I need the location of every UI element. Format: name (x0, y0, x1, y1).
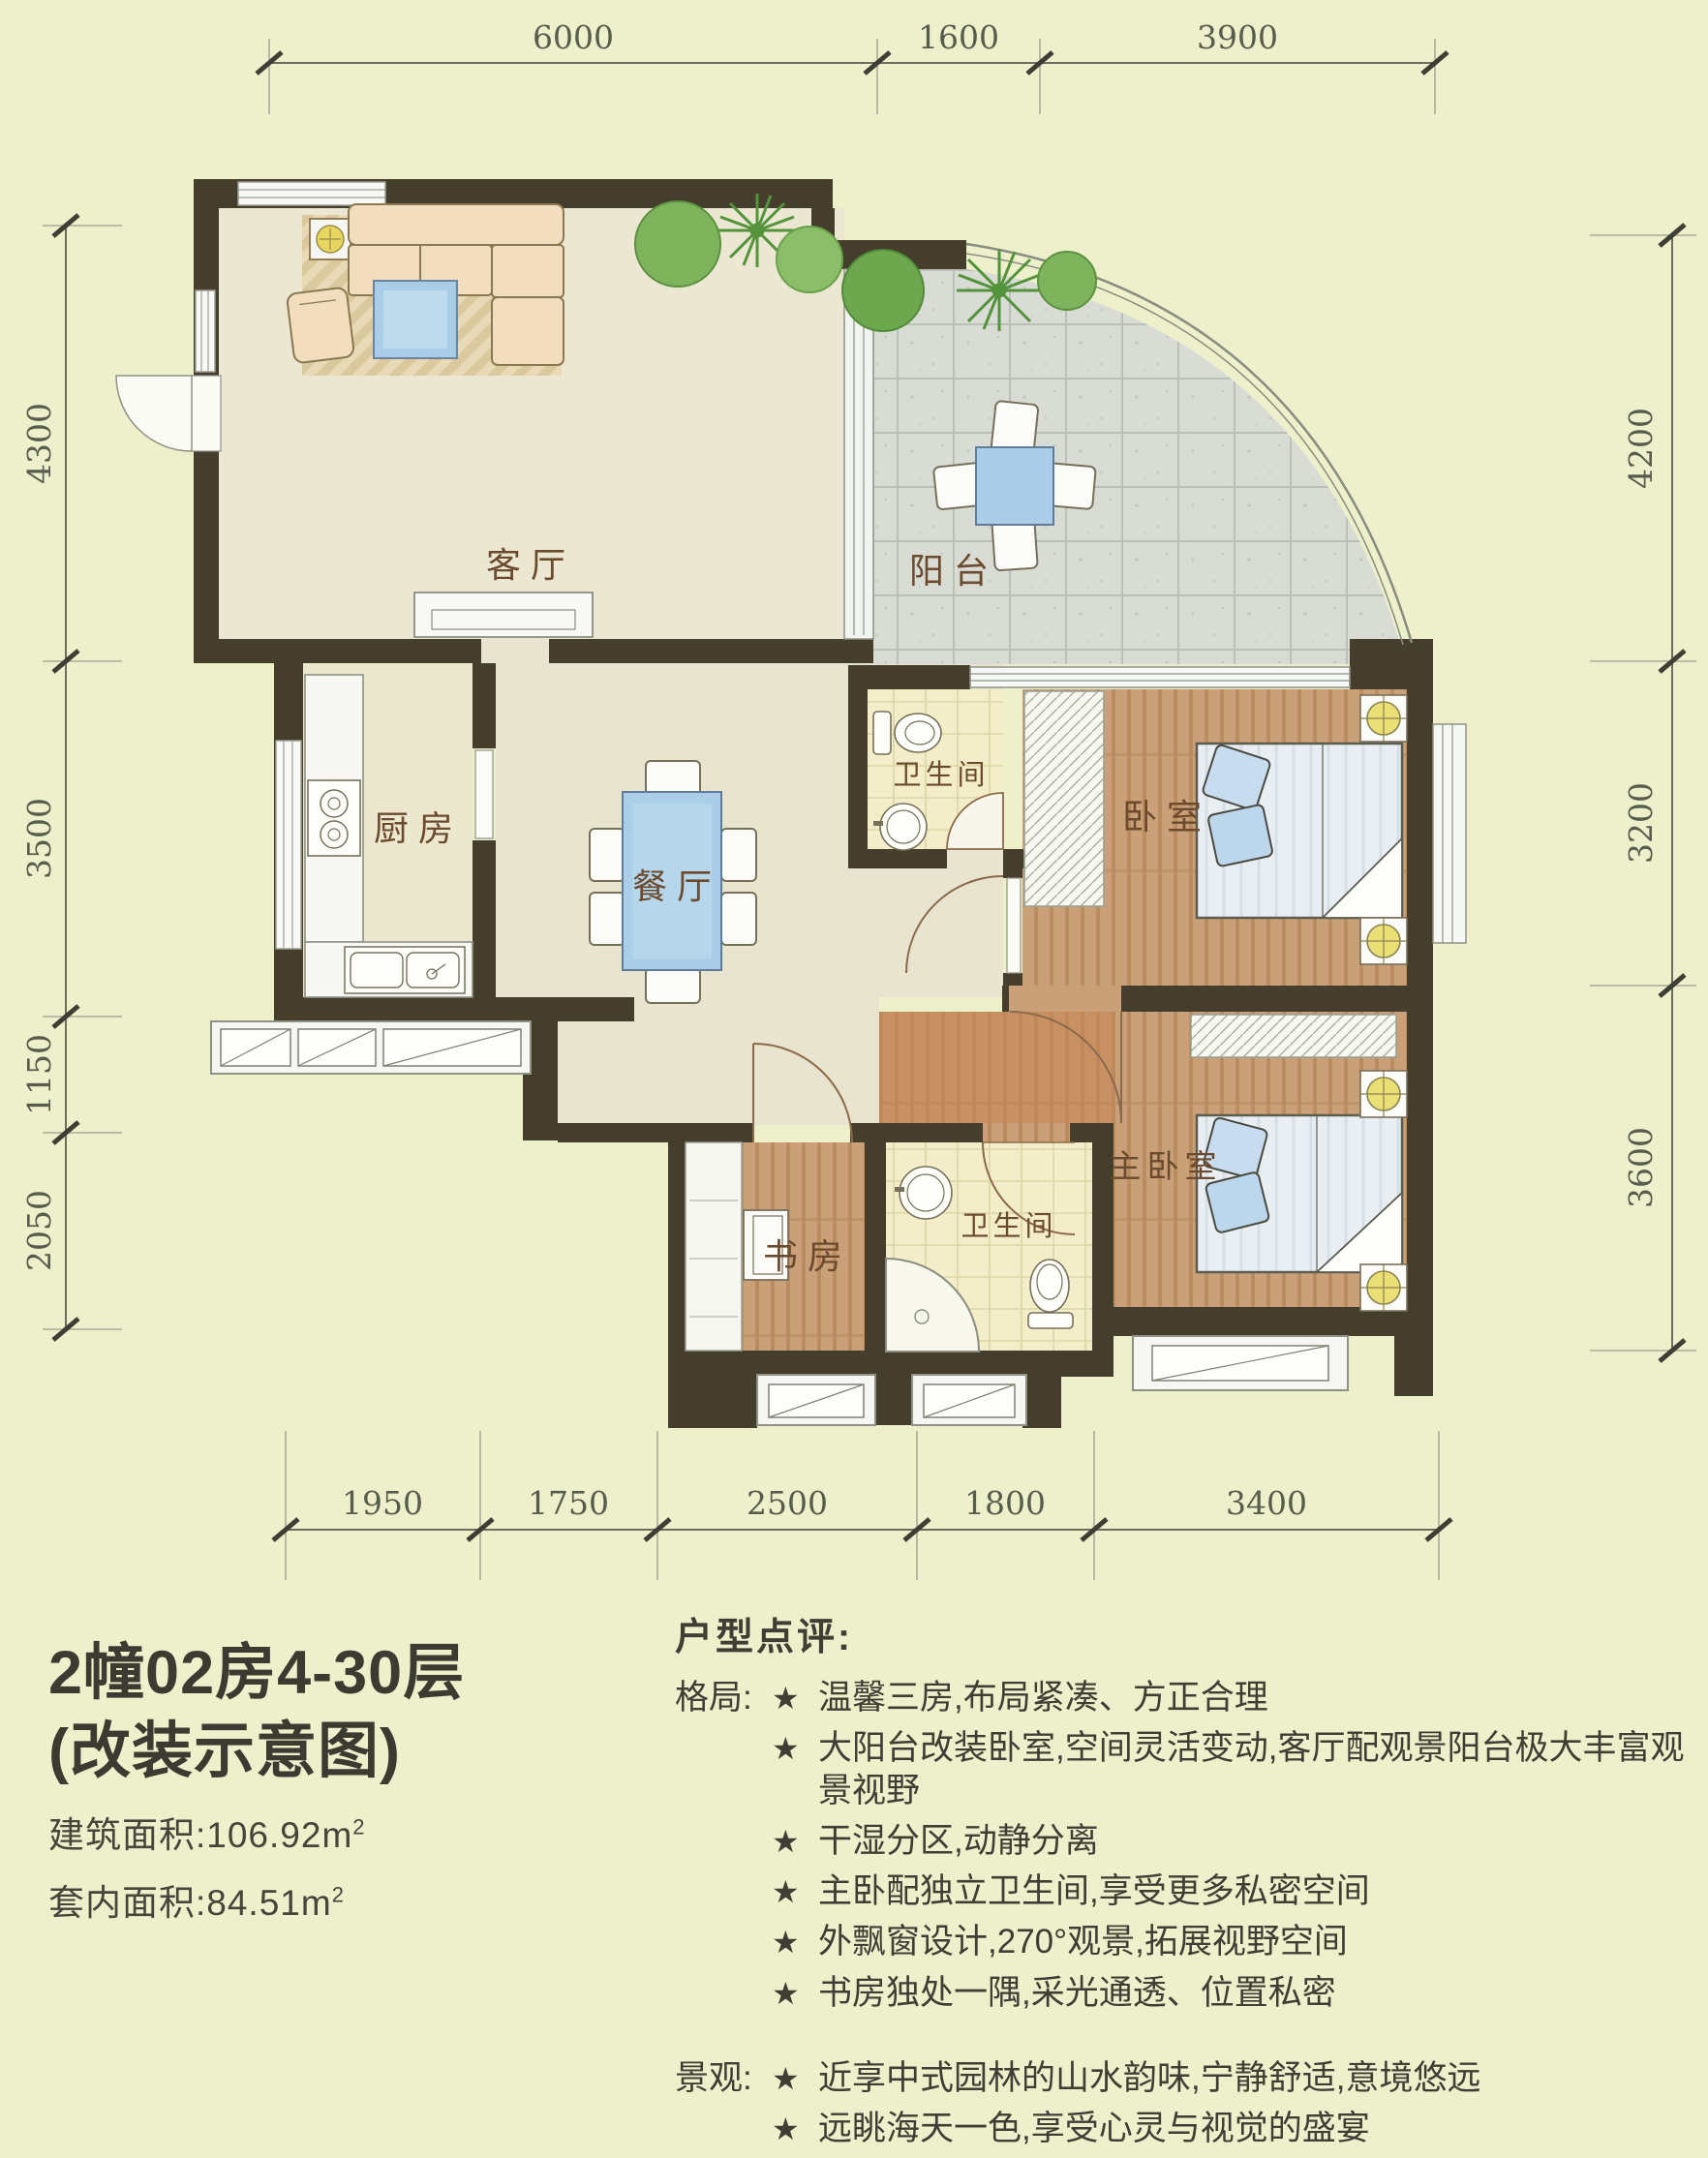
master-bay-window (1133, 1336, 1348, 1390)
dim-label: 1800 (964, 1484, 1046, 1522)
built-area-value: 106.92m (206, 1815, 352, 1855)
nightstand (1360, 918, 1407, 964)
stove-icon (308, 780, 360, 856)
dim-label: 2050 (20, 1190, 58, 1271)
kitchen-bay-window (211, 1021, 531, 1074)
dim-label: 3500 (20, 798, 58, 879)
floor-plan-drawing: 客厅 阳台 厨房 餐厅 卫生间 卧室 书房 卫生间 主卧室 6000 1600 … (0, 0, 1708, 1607)
kitchen-sink-icon (345, 947, 465, 993)
star-icon: ★ (772, 1727, 818, 1812)
inner-area-sup: 2 (332, 1883, 345, 1907)
floor-plan-page: 客厅 阳台 厨房 餐厅 卫生间 卧室 书房 卫生间 主卧室 6000 1600 … (0, 0, 1708, 2103)
dim-label: 3900 (1197, 18, 1278, 56)
wardrobe (1024, 691, 1104, 906)
star-icon: ★ (772, 1677, 818, 1719)
star-icon: ★ (772, 1972, 818, 2015)
balcony-table (976, 447, 1053, 525)
bed (1197, 1115, 1402, 1272)
wardrobe (1191, 1015, 1396, 1057)
dim-label: 3600 (1622, 1127, 1660, 1208)
built-area-sup: 2 (352, 1815, 365, 1839)
unit-title-line1: 2幢02房4-30层 (48, 1634, 465, 1713)
inner-area-row: 套内面积:84.51m2 (48, 1873, 465, 1926)
dining-chair (721, 893, 756, 945)
nightstand (1360, 695, 1407, 742)
master-bedroom-label: 主卧室 (1110, 1147, 1223, 1185)
star-icon: ★ (772, 2108, 818, 2150)
dim-label: 1150 (20, 1034, 58, 1115)
dim-label: 3200 (1622, 782, 1660, 864)
master-entry-floor (879, 1012, 1113, 1123)
dim-right: 4200 3200 3600 (1590, 225, 1696, 1361)
star-icon: ★ (772, 2057, 818, 2100)
review-group-label: 景观: (675, 2057, 772, 2100)
review-item: ★ 外飘窗设计,270°观景,拓展视野空间 (675, 1921, 1687, 1963)
study-bay-window (757, 1375, 875, 1425)
bedroom-bay-window (1433, 724, 1466, 943)
dining-chair (646, 968, 700, 1003)
review-item: ★ 干湿分区,动静分离 (675, 1820, 1687, 1863)
tv-cabinet (414, 593, 593, 637)
review-item: ★ 主卧配独立卫生间,享受更多私密空间 (675, 1870, 1687, 1913)
tree-icon (842, 250, 924, 331)
bedroom-label: 卧室 (1122, 798, 1211, 837)
dim-label: 3400 (1226, 1484, 1307, 1522)
star-icon: ★ (772, 1921, 818, 1963)
dim-label: 1950 (342, 1484, 423, 1522)
study-label: 书房 (763, 1237, 852, 1277)
dim-top: 6000 1600 3900 (257, 18, 1448, 114)
review-item: ★ 书房独处一隅,采光通透、位置私密 (675, 1972, 1687, 2015)
dim-label: 4300 (20, 403, 58, 484)
tree-icon (777, 227, 842, 292)
kitchen-left-window (276, 741, 301, 949)
built-area-row: 建筑面积:106.92m2 (48, 1806, 465, 1858)
inner-area-label: 套内面积: (48, 1883, 206, 1923)
review-item: ★ 大阳台改装卧室,空间灵活变动,客厅配观景阳台极大丰富观景视野 (675, 1727, 1687, 1812)
review-group-label: 格局: (675, 1677, 772, 1719)
dining-chair (590, 829, 625, 881)
tree-icon (635, 201, 720, 287)
study-closet (686, 1142, 742, 1351)
tree-icon (1038, 252, 1096, 310)
built-area-label: 建筑面积: (48, 1815, 206, 1855)
dining-chair (590, 893, 625, 945)
bathroom1-label: 卫生间 (893, 758, 989, 791)
inner-area-value: 84.51m (206, 1883, 331, 1923)
review-heading: 户型点评: (675, 1607, 1687, 1661)
kitchen-door (475, 750, 493, 838)
star-icon: ★ (772, 1820, 818, 1863)
review-item: 景观: ★ 近享中式园林的山水韵味,宁静舒适,意境悠远 (675, 2057, 1687, 2100)
dim-label: 1600 (918, 18, 999, 56)
entry-door (116, 376, 221, 451)
dining-chair (646, 761, 700, 796)
dining-chair (721, 829, 756, 881)
living-left-window (196, 290, 215, 372)
palm-tree-icon (957, 250, 1042, 331)
dim-bottom: 1950 1750 2500 1800 3400 (273, 1431, 1451, 1580)
nightstand (1360, 1071, 1407, 1117)
bathroom2-label: 卫生间 (961, 1209, 1056, 1242)
review-item: ★ 远眺海天一色,享受心灵与视觉的盛宴 (675, 2108, 1687, 2150)
bedroom-top-window (970, 667, 1350, 687)
dim-label: 4200 (1622, 408, 1660, 489)
dim-label: 1750 (528, 1484, 609, 1522)
armchair (287, 287, 354, 363)
unit-title-line2: (改装示意图) (48, 1713, 465, 1791)
bathroom2-bay-window (912, 1375, 1026, 1425)
dim-left: 4300 3500 1150 2050 (20, 215, 122, 1340)
dim-label: 6000 (533, 18, 614, 56)
pillow (1207, 805, 1273, 867)
dim-label: 2500 (747, 1484, 828, 1522)
coffee-table (374, 281, 457, 358)
balcony-label: 阳台 (909, 552, 998, 592)
nightstand (1360, 1264, 1407, 1311)
review-item: 格局: ★ 温馨三房,布局紧凑、方正合理 (675, 1677, 1687, 1719)
bed (1197, 744, 1402, 918)
toilet-icon (873, 712, 941, 754)
kitchen-label: 厨房 (374, 809, 463, 849)
living-room-label: 客厅 (486, 546, 575, 586)
title-block: 2幢02房4-30层 (改装示意图) 建筑面积:106.92m2 套内面积:84… (48, 1634, 465, 1926)
star-icon: ★ (772, 1870, 818, 1913)
dining-label: 餐厅 (632, 867, 721, 907)
review-block: 户型点评: 格局: ★ 温馨三房,布局紧凑、方正合理 ★ 大阳台改装卧室,空间灵… (675, 1607, 1687, 2158)
top-window (238, 182, 385, 205)
